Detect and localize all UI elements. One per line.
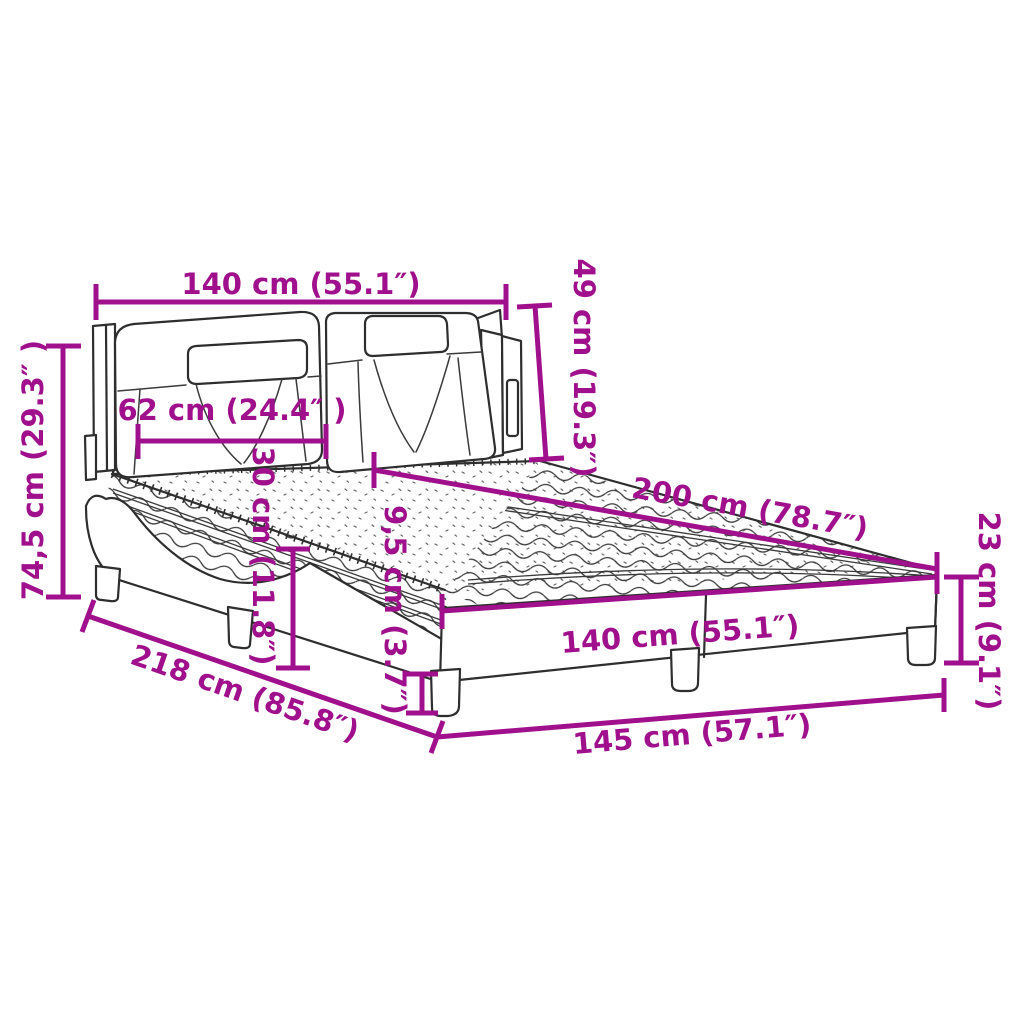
bed-dimension-diagram: 140 cm (55.1″) 49 cm (19.3″) 74,5 cm (29… xyxy=(0,0,1024,1024)
headboard-cushion-right xyxy=(326,313,495,472)
dim-label-headboard-upper-height: 49 cm (19.3″) xyxy=(567,259,601,478)
dim-label-mattress-thickness: 30 cm (11.8″) xyxy=(246,447,280,666)
dim-frame-height: 23 cm (9.1″) xyxy=(944,512,1006,711)
dim-label-cushion-width: 62 cm (24.4″ ) xyxy=(117,393,346,427)
dim-label-total-length: 218 cm (85.8″) xyxy=(126,638,363,749)
dim-label-headboard-width-top: 140 cm (55.1″) xyxy=(181,267,420,301)
dim-label-frame-height: 23 cm (9.1″) xyxy=(972,512,1006,711)
headboard-left-bracket xyxy=(85,435,96,480)
leg-back-left xyxy=(96,566,120,601)
dim-headboard-upper-height: 49 cm (19.3″) xyxy=(517,259,601,478)
leg-front-middle xyxy=(671,648,699,691)
dim-label-total-height: 74,5 cm (29.3″ ) xyxy=(16,340,50,600)
cushion-left-seam-row2 xyxy=(308,376,321,377)
dim-total-height: 74,5 cm (29.3″ ) xyxy=(16,340,81,600)
headboard-left-post-line xyxy=(106,326,107,470)
headboard-panel-detail xyxy=(507,380,518,436)
dimension-diagram-canvas: 140 cm (55.1″) 49 cm (19.3″) 74,5 cm (29… xyxy=(0,0,1024,1024)
leg-front-right xyxy=(907,626,936,665)
dim-label-rail-min-height: 9,5 cm (3.7″) xyxy=(378,505,412,715)
